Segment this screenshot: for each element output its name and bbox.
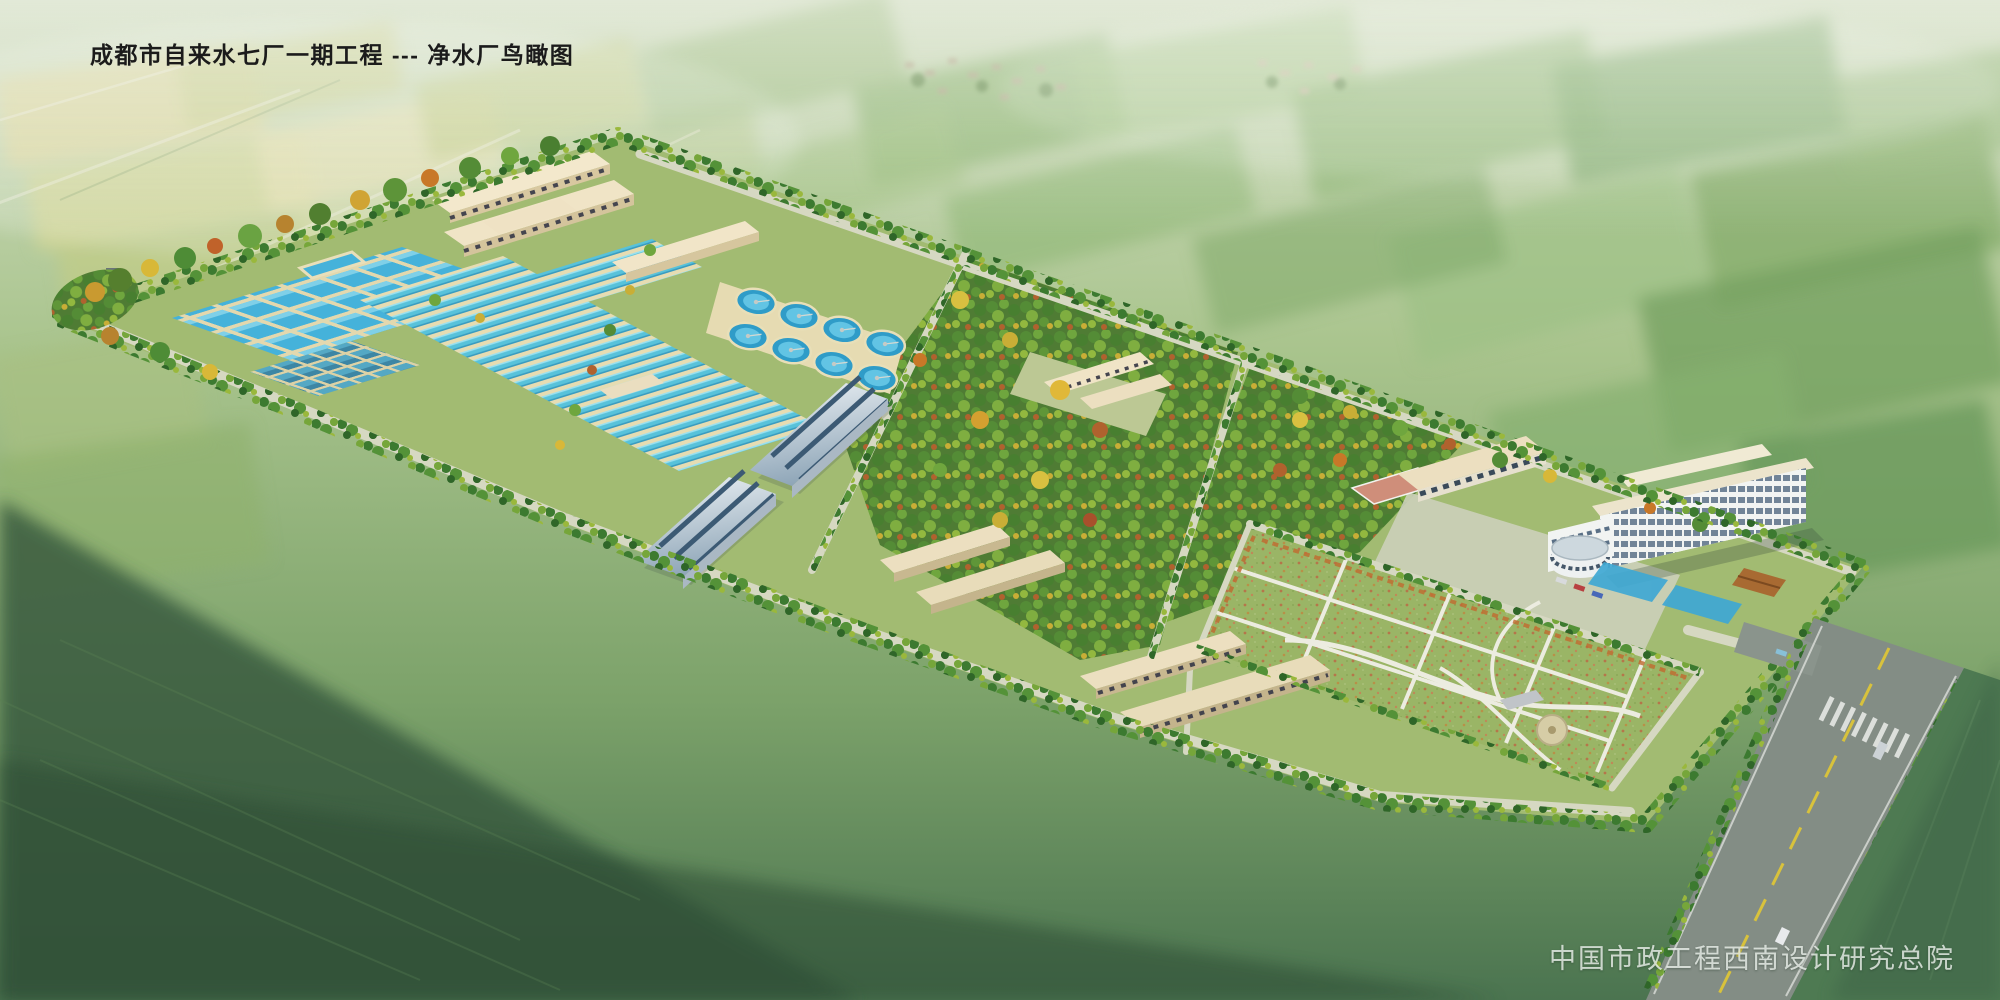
page-title: 成都市自来水七厂一期工程 --- 净水厂鸟瞰图 [90,36,574,70]
rendering-canvas [0,0,2000,1000]
credit-text: 中国市政工程西南设计研究总院 [1549,937,1955,976]
aerial-rendering: 成都市自来水七厂一期工程 --- 净水厂鸟瞰图 中国市政工程西南设计研究总院 [0,0,2000,1000]
